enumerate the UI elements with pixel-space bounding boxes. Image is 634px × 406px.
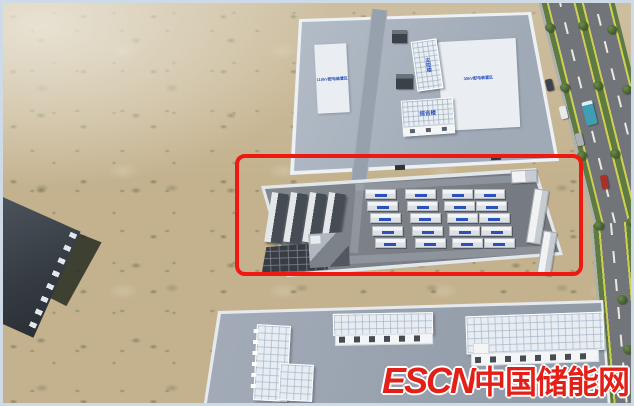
factory-building-middle-facade (335, 333, 433, 346)
complex-building: 综合楼 (401, 97, 455, 137)
street-tree (545, 23, 555, 32)
transformer-unit (392, 30, 407, 43)
street-tree (610, 149, 620, 158)
complex-building-label: 综合楼 (419, 108, 436, 117)
highlight-rectangle (235, 154, 583, 276)
area-35kv-label: 35kV配电装置区 (464, 74, 494, 82)
street-tree (623, 345, 633, 354)
street-tree (593, 81, 603, 90)
factory-building-left-wing (278, 363, 314, 402)
street-tree (617, 295, 627, 304)
transformer-unit (396, 74, 413, 89)
street-tree (560, 83, 570, 92)
factory-annex (473, 343, 489, 354)
street-tree (630, 391, 634, 400)
factory-building-middle-roof (333, 312, 433, 336)
watermark-site-text: 中国储能网 (474, 364, 629, 400)
area-110kv-pad: 110kV配电装置区 (314, 43, 350, 114)
rendered-image-frame: 110kV配电装置区 35kV配电装置区 主控楼 综合楼 (0, 0, 634, 406)
street-tree (627, 217, 634, 226)
street-tree (594, 221, 604, 230)
street-tree (622, 85, 632, 94)
street-tree (607, 25, 617, 34)
watermark: ESCN中国储能网 (382, 363, 629, 399)
street-tree (578, 21, 588, 30)
area-110kv-label: 110kV配电装置区 (316, 75, 348, 83)
complex-building-roof: 综合楼 (402, 98, 454, 126)
control-building-label: 主控楼 (422, 57, 432, 73)
watermark-logo-text: ESCN (382, 360, 474, 401)
aerial-render-scene: 110kV配电装置区 35kV配电装置区 主控楼 综合楼 (3, 3, 631, 403)
window-band (339, 335, 429, 343)
window-band (475, 353, 595, 363)
